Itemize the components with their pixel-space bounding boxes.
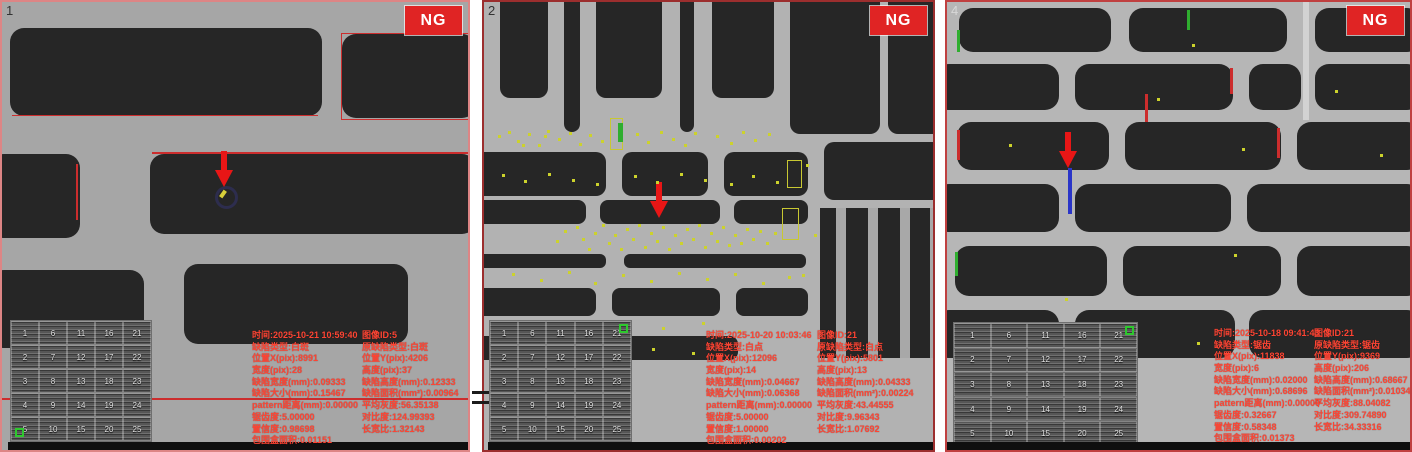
thumbnail-cell[interactable]: 2 xyxy=(490,345,518,369)
thumbnail-cell[interactable]: 6 xyxy=(39,321,67,345)
circuit-pad-shape xyxy=(1247,184,1412,232)
thumbnail-cell-number: 10 xyxy=(49,425,58,434)
defect-dot xyxy=(579,143,582,146)
thumbnail-cell-number: 3 xyxy=(970,380,974,389)
thumbnail-cell-number: 21 xyxy=(1114,331,1123,340)
defect-dot xyxy=(601,140,604,143)
gap-dash xyxy=(472,401,489,404)
thumbnail-cell[interactable]: 15 xyxy=(67,417,95,441)
defect-dot xyxy=(722,226,725,229)
defect-dot xyxy=(540,279,543,282)
circuit-pad-shape xyxy=(1129,8,1287,52)
defect-dot xyxy=(614,234,617,237)
defect-dot xyxy=(576,226,579,229)
thumbnail-cell-number: 17 xyxy=(105,353,114,362)
thumbnail-cell-number: 16 xyxy=(105,329,114,338)
ng-status-badge: NG xyxy=(1347,6,1404,35)
defect-dot xyxy=(522,144,525,147)
defect-dot xyxy=(716,135,719,138)
edge-mark xyxy=(836,208,846,358)
thumbnail-row: 510152025 xyxy=(11,417,151,441)
thumbnail-cell[interactable]: 4 xyxy=(490,393,518,417)
defect-dot xyxy=(636,133,639,136)
circuit-pad-shape xyxy=(1249,64,1301,110)
thumbnail-cell-number: 14 xyxy=(1041,405,1050,414)
circuit-pad-shape xyxy=(1123,246,1281,296)
edge-mark xyxy=(900,208,910,358)
thumbnail-cell-number: 6 xyxy=(51,329,55,338)
thumbnail-cell[interactable]: 14 xyxy=(67,393,95,417)
thumbnail-cell-number: 16 xyxy=(584,329,593,338)
thumbnail-cell-number: 13 xyxy=(1041,380,1050,389)
thumbnail-cell[interactable]: 25 xyxy=(603,417,631,441)
defect-dot xyxy=(594,282,597,285)
defect-dot xyxy=(568,271,571,274)
thumbnail-cell[interactable]: 9 xyxy=(991,397,1028,422)
thumbnail-cell-number: 5 xyxy=(502,425,506,434)
thumbnail-cell-number: 8 xyxy=(530,377,534,386)
thumbnail-cell-number: 19 xyxy=(584,401,593,410)
thumbnail-cell[interactable]: 15 xyxy=(546,417,574,441)
thumbnail-cell[interactable]: 16 xyxy=(95,321,123,345)
thumbnail-cell-number: 25 xyxy=(133,425,142,434)
thumbnail-cell[interactable]: 24 xyxy=(603,393,631,417)
thumbnail-cell[interactable]: 3 xyxy=(11,369,39,393)
thumbnail-cell[interactable]: 8 xyxy=(991,372,1028,397)
circuit-pad-shape xyxy=(736,288,808,316)
thumbnail-cell[interactable]: 12 xyxy=(67,345,95,369)
defect-dot xyxy=(656,181,659,184)
defect-dot xyxy=(752,175,755,178)
thumbnail-cell[interactable]: 23 xyxy=(603,369,631,393)
thumbnail-cell[interactable]: 2 xyxy=(11,345,39,369)
defect-dot xyxy=(1242,148,1245,151)
thumbnail-cell[interactable]: 7 xyxy=(991,348,1028,373)
thumbnail-cell[interactable]: 11 xyxy=(546,321,574,345)
defect-dot xyxy=(558,138,561,141)
defect-dot xyxy=(698,224,701,227)
defect-dot xyxy=(662,327,665,330)
inspection-panel-2[interactable]: 2 NG 16111621271217223813182349141924510… xyxy=(482,0,935,452)
defect-dot xyxy=(1197,342,1200,345)
thumbnail-cell[interactable]: 21 xyxy=(1100,323,1137,348)
defect-dot xyxy=(752,238,755,241)
thumbnail-cell[interactable]: 25 xyxy=(123,417,151,441)
defect-dot xyxy=(1234,254,1237,257)
circuit-pad-shape xyxy=(482,254,606,268)
thumbnail-cell[interactable]: 21 xyxy=(123,321,151,345)
defect-dot xyxy=(602,224,605,227)
thumbnail-cell[interactable]: 6 xyxy=(518,321,546,345)
defect-dot xyxy=(608,242,611,245)
defect-dot xyxy=(802,274,805,277)
thumbnail-row: 38131823 xyxy=(954,372,1137,397)
thumbnail-cell-number: 18 xyxy=(584,377,593,386)
thumbnail-cell-number: 19 xyxy=(1078,405,1087,414)
thumbnail-cell-number: 18 xyxy=(105,377,114,386)
thumbnail-cell[interactable]: 9 xyxy=(39,393,67,417)
thumbnail-cell[interactable]: 18 xyxy=(1064,372,1101,397)
thumbnail-cell-number: 12 xyxy=(556,353,565,362)
circuit-pad-shape xyxy=(1075,184,1231,232)
thumbnail-cell-number: 6 xyxy=(530,329,534,338)
thumbnail-cell-number: 1 xyxy=(970,331,974,340)
thumbnail-cell[interactable]: 10 xyxy=(518,417,546,441)
bottom-black-bar xyxy=(488,442,933,450)
thumbnail-cell[interactable]: 11 xyxy=(1027,323,1064,348)
defect-dot xyxy=(686,228,689,231)
defect-dot xyxy=(632,238,635,241)
thumbnail-cell[interactable]: 2 xyxy=(954,348,991,373)
thumbnail-cell-number: 23 xyxy=(612,377,621,386)
inspection-panel-3[interactable]: 4 NG 16111621271217223813182349141924510… xyxy=(945,0,1412,452)
edge-mark xyxy=(957,130,960,160)
circuit-pad-shape xyxy=(945,64,1059,110)
defect-dot xyxy=(498,135,501,138)
defect-dot xyxy=(660,131,663,134)
thumbnail-cell[interactable]: 6 xyxy=(991,323,1028,348)
thumbnail-cell-number: 24 xyxy=(1114,405,1123,414)
thumbnail-cell[interactable]: 17 xyxy=(1064,348,1101,373)
defect-dot xyxy=(652,348,655,351)
defect-dot xyxy=(502,174,505,177)
defect-pointer-arrow xyxy=(1059,132,1077,169)
circuit-pad-shape xyxy=(612,288,720,316)
circuit-pad-shape xyxy=(482,152,606,196)
defect-dot xyxy=(517,140,520,143)
thumbnail-cell[interactable]: 19 xyxy=(1064,397,1101,422)
circuit-pad-shape xyxy=(1125,122,1281,170)
defect-dot xyxy=(626,228,629,231)
thumbnail-cell-number: 3 xyxy=(502,377,506,386)
defect-dot xyxy=(572,179,575,182)
thumbnail-cell[interactable]: 1 xyxy=(11,321,39,345)
thumbnail-cell[interactable]: 22 xyxy=(1100,348,1137,373)
thumbnail-cell-number: 22 xyxy=(133,353,142,362)
thumbnail-cell-number: 7 xyxy=(51,353,55,362)
panel-index-label: 4 xyxy=(951,3,958,18)
thumbnail-cell-number: 10 xyxy=(528,425,537,434)
defect-dot xyxy=(1009,144,1012,147)
thumbnail-cell-number: 13 xyxy=(77,377,86,386)
edge-mark xyxy=(1277,128,1280,158)
thumbnail-cell-number: 2 xyxy=(23,353,27,362)
navigator-thumbnail[interactable]: 1611162127121722381318234914192451015202… xyxy=(10,320,152,442)
defect-dot xyxy=(734,234,737,237)
defect-dot xyxy=(569,132,572,135)
thumbnail-cell[interactable]: 19 xyxy=(575,393,603,417)
thumbnail-cell-number: 13 xyxy=(556,377,565,386)
thumbnail-cell[interactable]: 5 xyxy=(490,417,518,441)
thumbnail-cell-number: 14 xyxy=(556,401,565,410)
circuit-pad-shape xyxy=(596,0,662,98)
thumbnail-cell[interactable]: 17 xyxy=(95,345,123,369)
thumbnail-cell-number: 10 xyxy=(1004,429,1013,438)
circuit-pad-shape xyxy=(957,122,1109,170)
thumbnail-cell-number: 11 xyxy=(556,329,564,338)
thumbnail-cell[interactable]: 9 xyxy=(518,393,546,417)
edge-mark xyxy=(955,252,958,276)
thumbnail-cell-number: 9 xyxy=(1007,405,1011,414)
defect-dot xyxy=(710,232,713,235)
edge-mark xyxy=(152,152,470,154)
panel-index-label: 1 xyxy=(6,3,13,18)
thumbnail-cell-number: 8 xyxy=(51,377,55,386)
defect-dot xyxy=(678,272,681,275)
thumbnail-cell[interactable]: 8 xyxy=(39,369,67,393)
thumbnail-cell[interactable]: 19 xyxy=(95,393,123,417)
thumbnail-row: 49141924 xyxy=(954,397,1137,422)
navigator-thumbnail[interactable]: 1611162127121722381318234914192451015202… xyxy=(489,320,632,442)
thumbnail-cell-number: 11 xyxy=(77,329,85,338)
circuit-pad-shape xyxy=(1075,64,1233,110)
circuit-pad-shape xyxy=(482,288,596,316)
defect-dot xyxy=(1065,298,1068,301)
edge-mark xyxy=(1145,94,1148,122)
defect-bbox-outline xyxy=(782,208,799,240)
circuit-pad-shape xyxy=(1297,246,1412,296)
thumbnail-highlight-box xyxy=(15,428,24,437)
thumbnail-row: 49141924 xyxy=(11,393,151,417)
defect-dot xyxy=(692,238,695,241)
defect-dot xyxy=(556,240,559,243)
thumbnail-row: 27121722 xyxy=(954,348,1137,373)
thumbnail-row: 27121722 xyxy=(11,345,151,369)
defect-dot xyxy=(680,242,683,245)
thumbnail-cell-number: 7 xyxy=(530,353,534,362)
defect-dot xyxy=(588,248,591,251)
thumbnail-cell-number: 1 xyxy=(502,329,506,338)
defect-dot xyxy=(806,164,809,167)
thumbnail-row: 38131823 xyxy=(11,369,151,393)
defect-dot xyxy=(730,142,733,145)
thumbnail-cell-number: 12 xyxy=(1041,355,1050,364)
circuit-pad-shape xyxy=(0,154,80,238)
thumbnail-cell[interactable]: 20 xyxy=(575,417,603,441)
thumbnail-cell[interactable]: 16 xyxy=(575,321,603,345)
thumbnail-cell[interactable]: 7 xyxy=(39,345,67,369)
edge-mark xyxy=(1187,10,1190,30)
thumbnail-cell[interactable]: 13 xyxy=(1027,372,1064,397)
defect-dot xyxy=(1335,90,1338,93)
thumbnail-cell[interactable]: 8 xyxy=(518,369,546,393)
thumbnail-highlight-box xyxy=(619,324,628,333)
defect-dot xyxy=(706,278,709,281)
circuit-pad-shape xyxy=(150,154,470,234)
edge-mark xyxy=(618,123,623,142)
thumbnail-cell-number: 4 xyxy=(502,401,506,410)
panel-index-label: 2 xyxy=(488,3,495,18)
navigator-thumbnail[interactable]: 1611162127121722381318234914192451015202… xyxy=(953,322,1138,447)
defect-bbox-outline xyxy=(341,33,470,120)
thumbnail-cell-number: 23 xyxy=(133,377,142,386)
edge-mark xyxy=(868,208,878,358)
thumbnail-row: 38131823 xyxy=(490,369,631,393)
defect-bbox-outline xyxy=(787,160,802,188)
defect-dot xyxy=(776,181,779,184)
defect-dot xyxy=(589,134,592,137)
defect-dot xyxy=(728,244,731,247)
defect-dot xyxy=(582,238,585,241)
thumbnail-cell[interactable]: 12 xyxy=(1027,348,1064,373)
thumbnail-cell-number: 5 xyxy=(970,429,974,438)
defect-dot xyxy=(702,322,705,325)
defect-dot xyxy=(548,173,551,176)
thumbnail-cell-number: 17 xyxy=(584,353,593,362)
defect-dot xyxy=(622,274,625,277)
thumbnail-cell[interactable]: 20 xyxy=(95,417,123,441)
thumbnail-cell[interactable]: 5 xyxy=(11,417,39,441)
thumbnail-cell-number: 25 xyxy=(612,425,621,434)
circuit-pad-shape xyxy=(712,0,774,98)
thumbnail-cell[interactable]: 4 xyxy=(11,393,39,417)
defect-dot xyxy=(596,183,599,186)
thumbnail-cell[interactable]: 10 xyxy=(39,417,67,441)
thumbnail-cell[interactable]: 17 xyxy=(575,345,603,369)
bottom-black-bar xyxy=(947,442,1410,450)
thumbnail-cell-number: 24 xyxy=(612,401,621,410)
edge-mark xyxy=(12,115,318,116)
thumbnail-cell-number: 22 xyxy=(612,353,621,362)
defect-dot xyxy=(742,131,745,134)
thumbnail-cell-number: 19 xyxy=(105,401,114,410)
defect-dot xyxy=(759,230,762,233)
thumbnail-cell[interactable]: 23 xyxy=(123,369,151,393)
thumbnail-cell[interactable]: 14 xyxy=(1027,397,1064,422)
ng-status-badge: NG xyxy=(405,6,462,35)
defect-dot xyxy=(768,133,771,136)
circuit-pad-shape xyxy=(1315,64,1412,110)
defect-dot xyxy=(740,242,743,245)
thumbnail-cell[interactable]: 18 xyxy=(575,369,603,393)
gap-dash xyxy=(472,391,489,394)
circuit-pad-shape xyxy=(482,200,586,224)
defect-dot xyxy=(668,248,671,251)
thumbnail-cell[interactable]: 7 xyxy=(518,345,546,369)
thumbnail-cell[interactable]: 4 xyxy=(954,397,991,422)
defect-pointer-arrow xyxy=(215,151,233,188)
thumbnail-cell-number: 15 xyxy=(556,425,565,434)
defect-dot xyxy=(647,141,650,144)
thumbnail-cell-number: 22 xyxy=(1114,355,1123,364)
thumbnail-cell-number: 20 xyxy=(1078,429,1087,438)
defect-dot xyxy=(730,183,733,186)
thumbnail-cell-number: 6 xyxy=(1007,331,1011,340)
defect-dot xyxy=(692,352,695,355)
circuit-pad-shape xyxy=(790,0,880,134)
defect-dot xyxy=(672,138,675,141)
thumbnail-cell-number: 9 xyxy=(530,401,534,410)
thumbnail-cell-number: 20 xyxy=(105,425,114,434)
thumbnail-cell[interactable]: 3 xyxy=(490,369,518,393)
thumbnail-cell-number: 4 xyxy=(970,405,974,414)
thumbnail-cell[interactable]: 1 xyxy=(490,321,518,345)
circuit-pad-shape xyxy=(624,336,738,360)
defect-dot xyxy=(738,330,741,333)
thumbnail-cell-number: 12 xyxy=(77,353,86,362)
defect-dot xyxy=(754,139,757,142)
thumbnail-cell[interactable]: 16 xyxy=(1064,323,1101,348)
defect-dot xyxy=(544,135,547,138)
defect-marker-ring xyxy=(215,186,238,209)
thumbnail-cell[interactable]: 3 xyxy=(954,372,991,397)
thumbnail-cell[interactable]: 18 xyxy=(95,369,123,393)
defect-dot xyxy=(650,232,653,235)
thumbnail-cell-number: 21 xyxy=(133,329,142,338)
edge-mark xyxy=(76,164,78,220)
defect-dot xyxy=(620,248,623,251)
defect-dot xyxy=(774,232,777,235)
thumbnail-cell[interactable]: 22 xyxy=(603,345,631,369)
defect-dot xyxy=(524,180,527,183)
defect-dot xyxy=(766,242,769,245)
thumbnail-row: 16111621 xyxy=(490,321,631,345)
thumbnail-cell-number: 3 xyxy=(23,377,27,386)
defect-dot xyxy=(528,133,531,136)
thumbnail-cell[interactable]: 1 xyxy=(954,323,991,348)
thumbnail-cell[interactable]: 21 xyxy=(603,321,631,345)
defect-dot xyxy=(704,246,707,249)
thumbnail-row: 16111621 xyxy=(954,323,1137,348)
defect-dot xyxy=(1157,98,1160,101)
defect-dot xyxy=(638,224,641,227)
defect-dot xyxy=(788,276,791,279)
circuit-pad-shape xyxy=(680,0,694,132)
thumbnail-cell[interactable]: 13 xyxy=(67,369,95,393)
thumbnail-cell-number: 8 xyxy=(1007,380,1011,389)
defect-pointer-arrow xyxy=(650,182,668,219)
thumbnail-cell-number: 15 xyxy=(1041,429,1050,438)
defect-dot xyxy=(547,130,550,133)
thumbnail-cell-number: 24 xyxy=(133,401,142,410)
thumbnail-cell-number: 17 xyxy=(1078,355,1087,364)
thumbnail-cell[interactable]: 11 xyxy=(67,321,95,345)
thumbnail-cell-number: 7 xyxy=(1007,355,1011,364)
thumbnail-cell-number: 1 xyxy=(23,329,27,338)
circuit-pad-shape xyxy=(10,28,322,116)
inspection-panel-1[interactable]: 1 NG 16111621271217223813182349141924510… xyxy=(0,0,470,452)
circuit-pad-shape xyxy=(824,142,935,200)
thumbnail-cell-number: 11 xyxy=(1041,331,1049,340)
bottom-black-bar xyxy=(8,442,468,450)
defect-dot xyxy=(746,228,749,231)
thumbnail-cell-number: 16 xyxy=(1078,331,1087,340)
thumbnail-cell[interactable]: 22 xyxy=(123,345,151,369)
defect-dot xyxy=(684,144,687,147)
thumbnail-cell-number: 2 xyxy=(502,353,506,362)
defect-dot xyxy=(650,280,653,283)
thumbnail-cell-number: 9 xyxy=(51,401,55,410)
thumbnail-row: 49141924 xyxy=(490,393,631,417)
edge-mark xyxy=(1303,2,1309,120)
thumbnail-cell-number: 25 xyxy=(1114,429,1123,438)
circuit-pad-shape xyxy=(1249,310,1412,358)
thumbnail-cell[interactable]: 12 xyxy=(546,345,574,369)
thumbnail-cell[interactable]: 13 xyxy=(546,369,574,393)
thumbnail-cell[interactable]: 24 xyxy=(123,393,151,417)
defect-review-strip: 1 NG 16111621271217223813182349141924510… xyxy=(0,0,1412,452)
circuit-pad-shape xyxy=(184,264,408,344)
defect-dot xyxy=(594,232,597,235)
thumbnail-cell[interactable]: 24 xyxy=(1100,397,1137,422)
defect-dot xyxy=(680,173,683,176)
thumbnail-cell[interactable]: 23 xyxy=(1100,372,1137,397)
defect-dot xyxy=(512,273,515,276)
thumbnail-row: 27121722 xyxy=(490,345,631,369)
thumbnail-cell[interactable]: 14 xyxy=(546,393,574,417)
thumbnail-cell-number: 18 xyxy=(1078,380,1087,389)
circuit-pad-shape xyxy=(500,0,548,98)
